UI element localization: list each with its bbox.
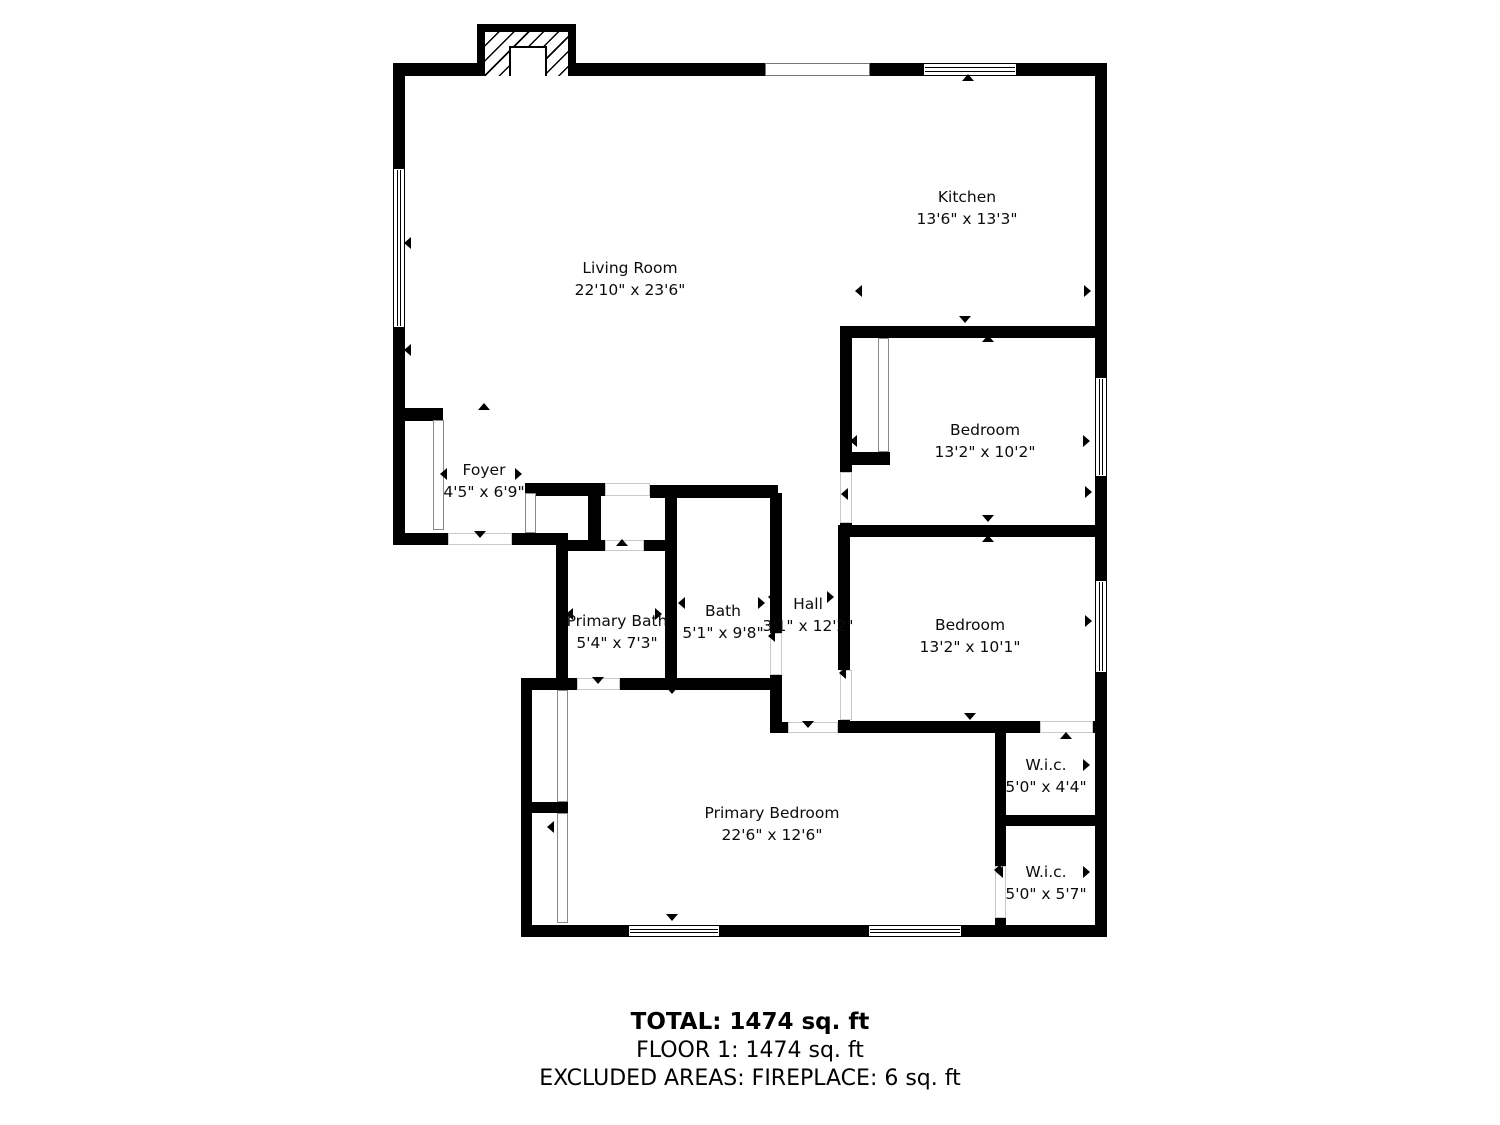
wall: [719, 925, 869, 937]
door-marker: [841, 488, 848, 500]
room-label-living-room: Living Room22'10" x 23'6": [575, 257, 686, 301]
wall: [393, 63, 478, 76]
wall: [1093, 721, 1107, 733]
door-marker: [802, 721, 814, 728]
wall: [393, 533, 448, 545]
room-label-bedroom: Bedroom13'2" x 10'1": [920, 614, 1021, 658]
wall: [840, 326, 852, 472]
dimension-arrow: [547, 821, 554, 833]
closet-door: [557, 690, 568, 802]
wall: [665, 485, 677, 690]
room-dimensions: 22'6" x 12'6": [705, 824, 840, 846]
dimension-arrow: [982, 335, 994, 342]
wall: [575, 63, 765, 76]
window: [1095, 580, 1107, 673]
room-dimensions: 13'2" x 10'2": [935, 441, 1036, 463]
wall: [521, 925, 629, 937]
wall: [527, 802, 568, 813]
room-name: Hall: [762, 593, 853, 615]
room-dimensions: 5'1" x 9'8": [682, 622, 763, 644]
wall: [870, 63, 923, 76]
dimension-arrow: [959, 316, 971, 323]
room-dimensions: 4'5" x 6'9": [443, 481, 524, 503]
excluded-area-text: EXCLUDED AREAS: FIREPLACE: 6 sq. ft: [0, 1065, 1500, 1093]
floor-plan: Living Room22'10" x 23'6"Kitchen13'6" x …: [0, 0, 1500, 1000]
door-marker: [1060, 732, 1072, 739]
dimension-arrow: [1084, 285, 1091, 297]
room-dimensions: 13'6" x 13'3": [917, 208, 1018, 230]
room-name: Bath: [682, 600, 763, 622]
room-name: W.i.c.: [1005, 861, 1086, 883]
door-marker: [474, 531, 486, 538]
door-marker: [592, 677, 604, 684]
window-marker: [666, 914, 678, 921]
closet-door: [557, 813, 568, 923]
dimension-arrow: [404, 344, 411, 356]
window: [868, 925, 962, 937]
room-name: W.i.c.: [1005, 754, 1086, 776]
room-dimensions: 5'0" x 4'4": [1005, 776, 1086, 798]
wall: [588, 483, 601, 543]
room-name: Bedroom: [935, 419, 1036, 441]
wall: [838, 721, 1040, 733]
room-label-w-i-c: W.i.c.5'0" x 5'7": [1005, 861, 1086, 905]
wall: [838, 525, 1107, 537]
window-marker: [404, 237, 411, 249]
room-name: Bedroom: [920, 614, 1021, 636]
room-name: Primary Bath: [567, 610, 668, 632]
room-label-bath: Bath5'1" x 9'8": [682, 600, 763, 644]
room-dimensions: 13'2" x 10'1": [920, 636, 1021, 658]
wall: [393, 328, 405, 545]
room-label-kitchen: Kitchen13'6" x 13'3": [917, 186, 1018, 230]
wall: [840, 326, 1107, 338]
wall: [961, 925, 1107, 937]
dimension-arrow: [964, 713, 976, 720]
room-name: Kitchen: [917, 186, 1018, 208]
window-marker: [1085, 615, 1092, 627]
door-marker: [478, 403, 490, 410]
wall: [393, 63, 405, 168]
dimension-arrow: [855, 285, 862, 297]
area-summary: TOTAL: 1474 sq. ft FLOOR 1: 1474 sq. ft …: [0, 1008, 1500, 1093]
room-label-w-i-c: W.i.c.5'0" x 4'4": [1005, 754, 1086, 798]
dimension-arrow: [1083, 435, 1090, 447]
wall: [525, 531, 536, 545]
wall: [852, 452, 890, 465]
wall: [620, 678, 780, 690]
fireplace-firebox: [509, 46, 547, 76]
dimension-arrow: [996, 866, 1003, 878]
window-marker: [1085, 486, 1092, 498]
room-label-primary-bath: Primary Bath5'4" x 7'3": [567, 610, 668, 654]
total-area-text: TOTAL: 1474 sq. ft: [0, 1008, 1500, 1037]
window: [628, 925, 720, 937]
room-label-primary-bedroom: Primary Bedroom22'6" x 12'6": [705, 802, 840, 846]
door-marker: [839, 667, 846, 679]
closet-door: [878, 338, 889, 452]
dimension-arrow: [996, 759, 1003, 771]
dimension-arrow: [850, 435, 857, 447]
wall: [995, 815, 1107, 826]
wall: [995, 733, 1006, 866]
room-name: Primary Bedroom: [705, 802, 840, 824]
wall: [1017, 63, 1107, 76]
room-label-hall: Hall3'1" x 12'2": [762, 593, 853, 637]
door-marker: [666, 687, 678, 694]
wall: [1095, 673, 1107, 937]
room-name: Foyer: [443, 459, 524, 481]
room-dimensions: 3'1" x 12'2": [762, 615, 853, 637]
wall-opening: [765, 63, 870, 76]
dimension-arrow: [982, 515, 994, 522]
floor-area-text: FLOOR 1: 1474 sq. ft: [0, 1037, 1500, 1065]
wall: [995, 918, 1006, 926]
room-label-bedroom: Bedroom13'2" x 10'2": [935, 419, 1036, 463]
window: [1095, 377, 1107, 477]
window-marker: [962, 74, 974, 81]
dimension-arrow: [982, 535, 994, 542]
door-opening: [605, 483, 650, 496]
closet-door: [525, 493, 536, 533]
door-marker: [616, 539, 628, 546]
floor-plan-page: Living Room22'10" x 23'6"Kitchen13'6" x …: [0, 0, 1500, 1125]
room-dimensions: 5'0" x 5'7": [1005, 883, 1086, 905]
room-dimensions: 5'4" x 7'3": [567, 632, 668, 654]
room-label-foyer: Foyer4'5" x 6'9": [443, 459, 524, 503]
room-name: Living Room: [575, 257, 686, 279]
room-dimensions: 22'10" x 23'6": [575, 279, 686, 301]
